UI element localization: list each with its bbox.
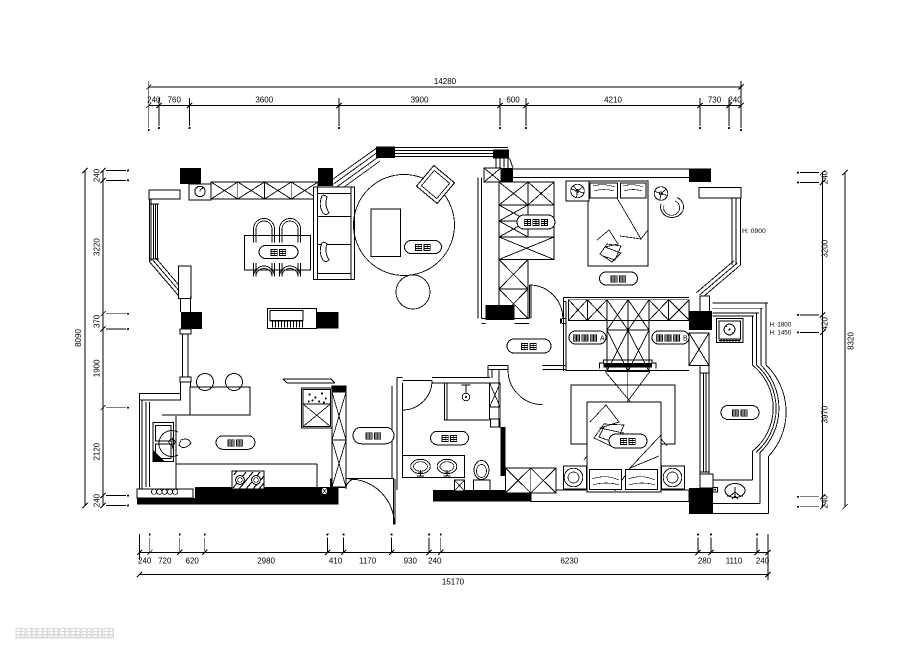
svg-text:240: 240 (138, 557, 152, 566)
svg-text:14280: 14280 (434, 77, 457, 86)
svg-text:760: 760 (168, 96, 182, 105)
svg-text:600: 600 (506, 96, 520, 105)
svg-text:3970: 3970 (821, 405, 830, 423)
svg-text:H: 0900: H: 0900 (742, 228, 766, 235)
svg-text:1110: 1110 (726, 557, 743, 566)
svg-text:A: A (600, 335, 605, 342)
svg-text:420: 420 (821, 316, 830, 330)
svg-text:240: 240 (821, 495, 830, 509)
svg-text:240: 240 (147, 96, 161, 105)
svg-text:6230: 6230 (560, 557, 578, 566)
svg-text:H: 1450: H: 1450 (770, 330, 792, 337)
svg-text:620: 620 (186, 557, 200, 566)
svg-text:240: 240 (756, 557, 770, 566)
svg-text:1170: 1170 (359, 557, 377, 566)
svg-text:240: 240 (93, 168, 102, 182)
svg-text:280: 280 (698, 557, 712, 566)
svg-text:3220: 3220 (93, 238, 102, 256)
svg-text:370: 370 (93, 314, 102, 328)
svg-text:8320: 8320 (847, 332, 856, 350)
svg-text:B: B (683, 335, 688, 342)
svg-text:15170: 15170 (442, 578, 465, 587)
svg-text:240: 240 (428, 557, 442, 566)
svg-text:2980: 2980 (257, 557, 275, 566)
svg-text:240: 240 (821, 170, 830, 184)
svg-text:3600: 3600 (255, 96, 273, 105)
svg-text:8090: 8090 (74, 329, 83, 347)
svg-text:1900: 1900 (93, 359, 102, 377)
svg-text:240: 240 (93, 493, 102, 507)
svg-text:930: 930 (404, 557, 418, 566)
svg-text:410: 410 (329, 557, 343, 566)
svg-text:2120: 2120 (93, 442, 102, 460)
svg-text:3200: 3200 (821, 239, 830, 257)
svg-text:3900: 3900 (411, 96, 429, 105)
svg-text:730: 730 (708, 96, 722, 105)
svg-text:720: 720 (158, 557, 172, 566)
svg-text:H: 1800: H: 1800 (770, 322, 792, 329)
svg-text:4210: 4210 (604, 96, 622, 105)
svg-text:240: 240 (728, 96, 742, 105)
